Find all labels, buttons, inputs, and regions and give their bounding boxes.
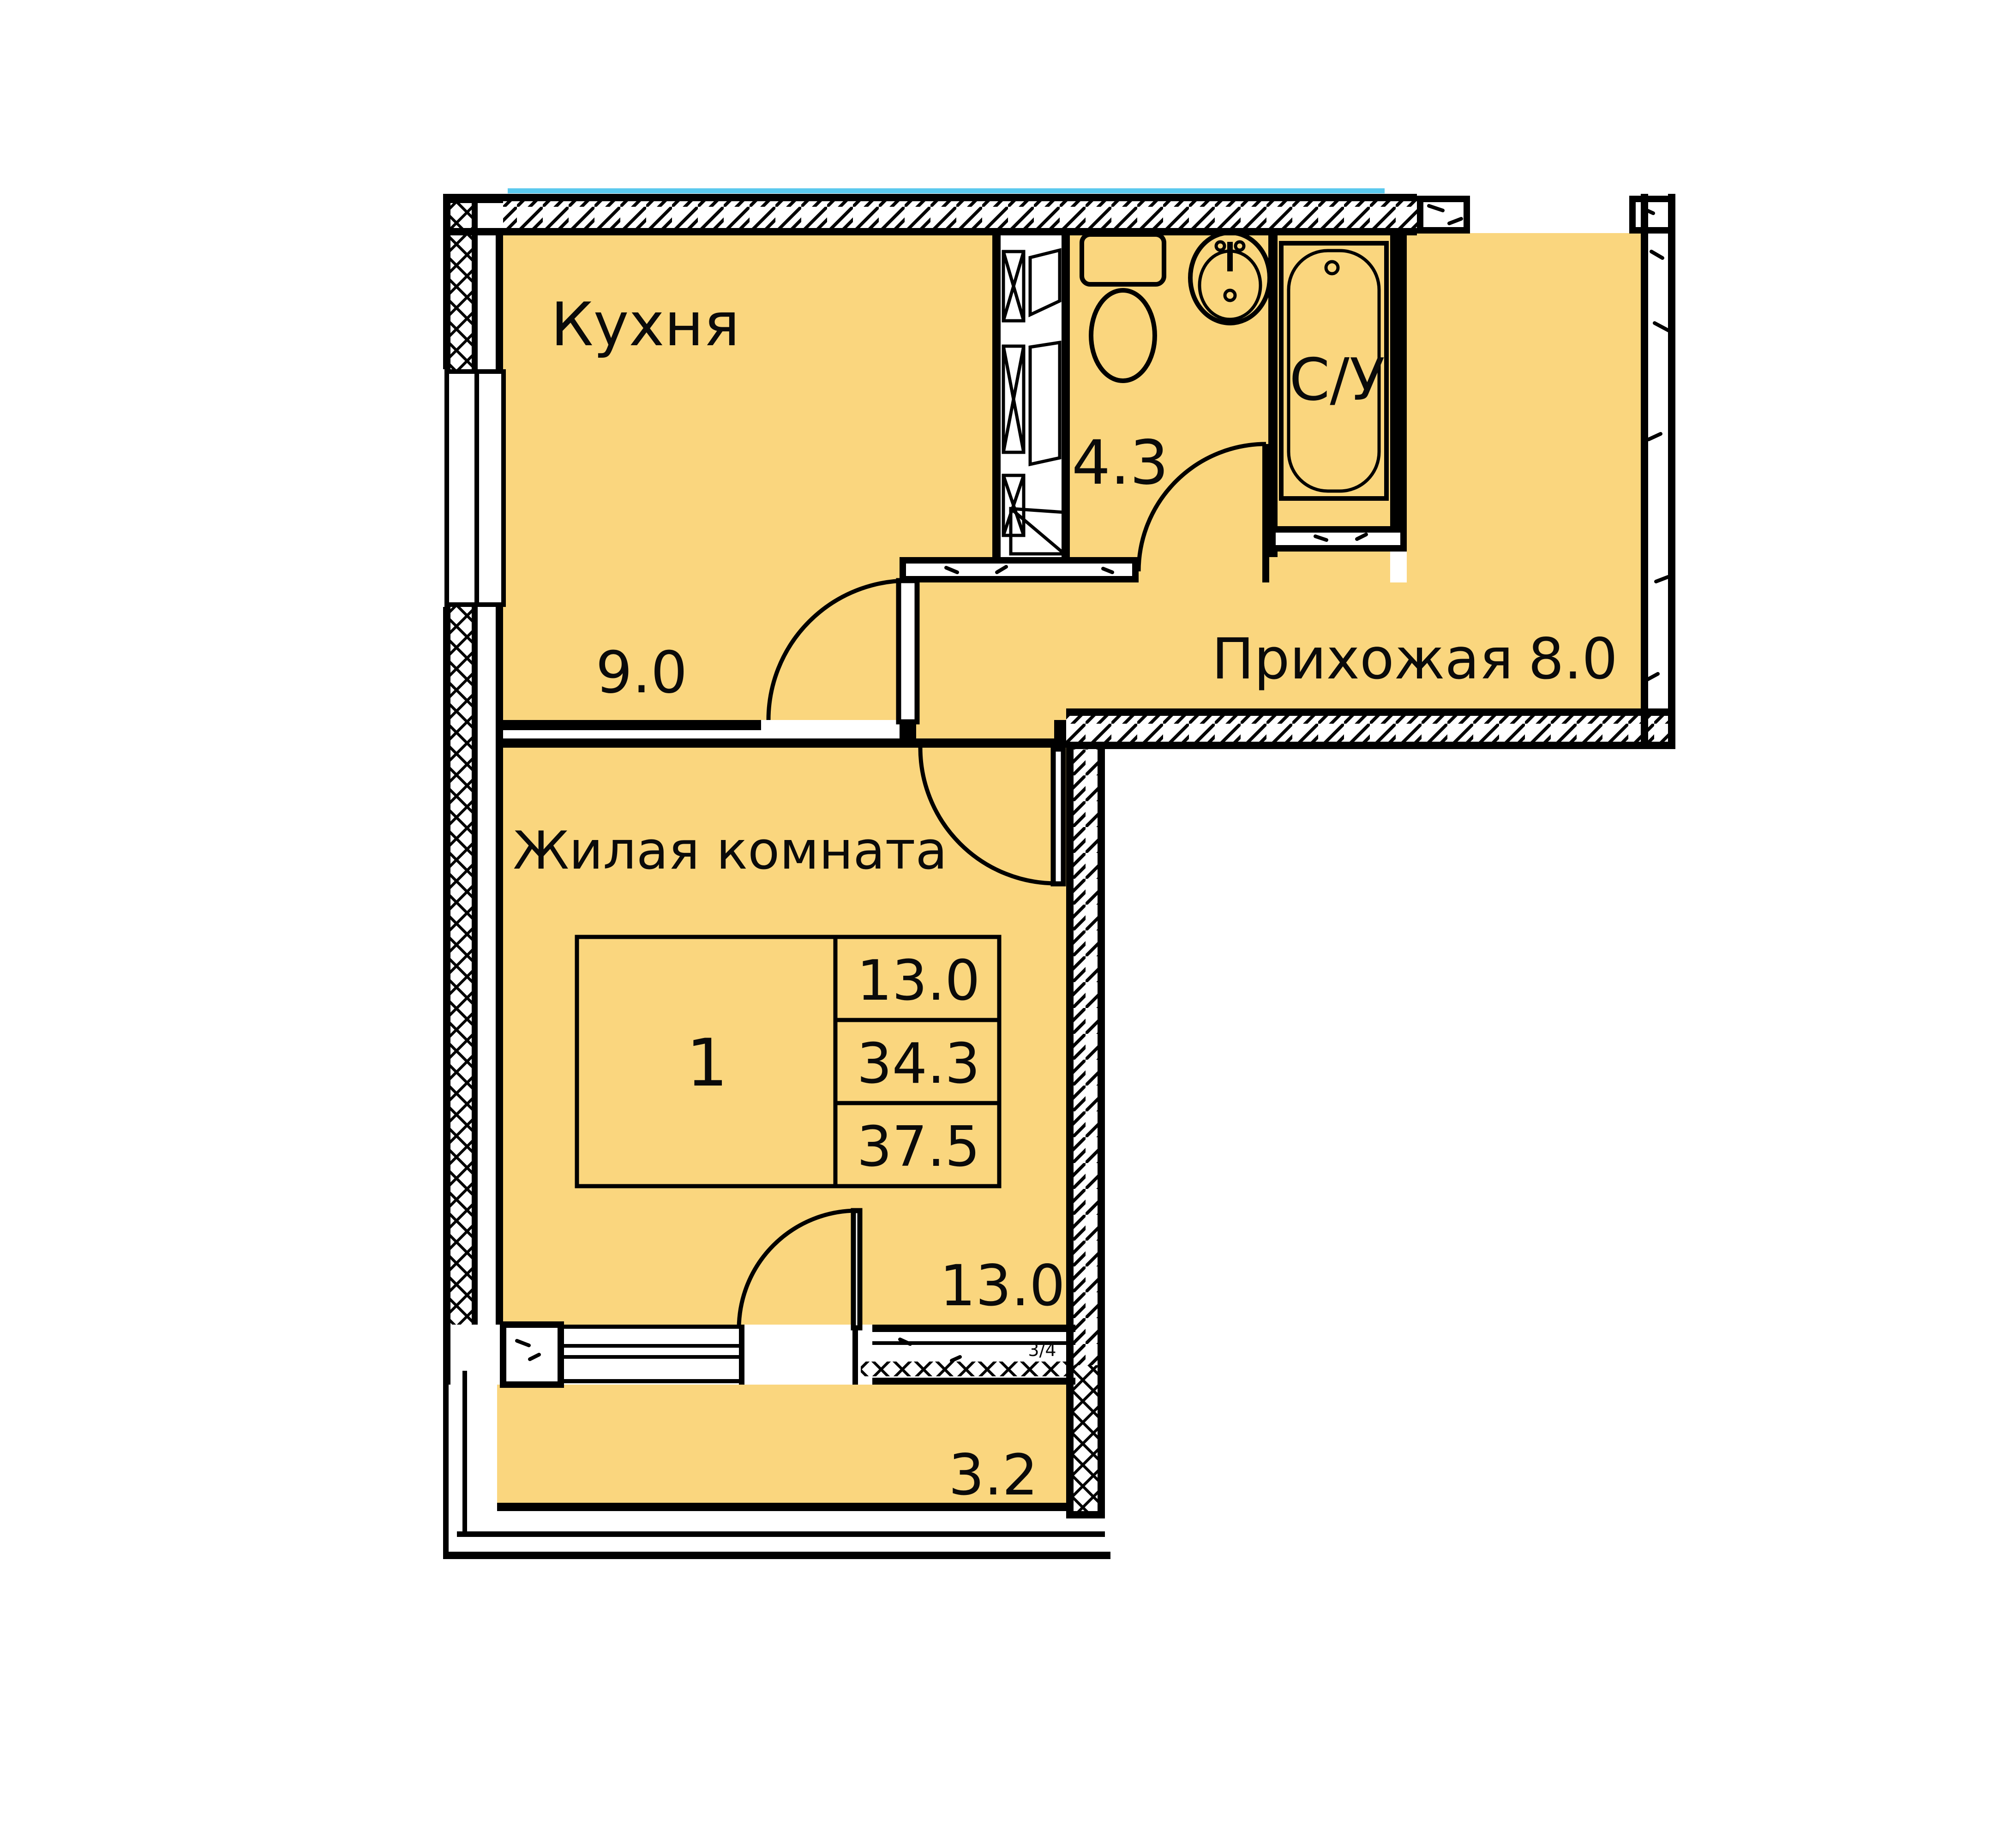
right-wall-outer-line	[1668, 194, 1675, 749]
left-wall-inner-b	[496, 607, 503, 1325]
top-wall-outer-edge	[443, 194, 1417, 201]
hall-bottom-wall-hatch	[1066, 716, 1675, 742]
kitchen-label: Кухня	[551, 289, 739, 360]
hallway-label: Прихожая	[1212, 626, 1513, 692]
living-right-wall-right-edge	[1098, 748, 1105, 1518]
room-hallway-left	[916, 582, 1066, 738]
bath-door-gap	[1139, 557, 1262, 582]
living-label: Жилая комната	[513, 820, 947, 881]
su-right-wall	[1390, 233, 1407, 552]
right-wall-inner-line	[1641, 194, 1648, 749]
balcony-area: 3.2	[948, 1442, 1038, 1508]
kitchen-window	[444, 369, 506, 607]
sink-tap	[1227, 242, 1233, 271]
hallway-area: 8.0	[1528, 626, 1618, 692]
hall-bottom-wall-top-edge	[1066, 708, 1675, 716]
living-door-jamb-block	[1054, 720, 1066, 748]
left-wall-hatch-a	[450, 201, 472, 369]
left-wall-hatch-b	[450, 607, 472, 1325]
left-wall-outer-b	[443, 607, 450, 1385]
bath-bottom-wall-left	[903, 560, 1135, 579]
sill-hatch-strip	[861, 1362, 1075, 1376]
room-bathroom-43	[1070, 233, 1268, 557]
kitchen-vent-wall	[992, 233, 1001, 582]
living-right-wall-cap	[1066, 1511, 1105, 1518]
bath-door-jamb	[1262, 557, 1269, 582]
top-wall-hatch	[503, 201, 1417, 228]
kitchen-living-wall-top-line	[503, 720, 761, 730]
stamp-total-area: 37.5	[857, 1115, 980, 1179]
bathroom-area: 4.3	[1072, 427, 1169, 498]
sill-mark: 3/4	[1028, 1340, 1056, 1360]
left-wall-outer-a	[443, 194, 450, 369]
living-area: 13.0	[940, 1253, 1065, 1319]
left-wall-midline-b	[472, 607, 478, 1325]
balcony-right-wall-hatch	[1074, 1365, 1098, 1518]
floor-plan-page: Кухня 9.0 4.3 С/У Прихожая 8.0 Жилая ком…	[0, 0, 1998, 1848]
room-hallway-under-su	[1269, 552, 1390, 582]
living-bottom-wall	[503, 1325, 1075, 1385]
left-wall-inner-a	[496, 233, 503, 369]
sill-pier	[503, 1325, 561, 1385]
hall-bottom-wall-cap	[1668, 708, 1675, 749]
hall-bottom-wall-bottom-edge	[1066, 742, 1675, 749]
bathroom-label: С/У	[1289, 346, 1385, 414]
balcony-door-jamb	[852, 1325, 858, 1385]
floor-plan-drawing: Кухня 9.0 4.3 С/У Прихожая 8.0 Жилая ком…	[0, 0, 1998, 1848]
stamp-living-area: 13.0	[857, 949, 980, 1013]
living-right-wall-hatch	[1074, 748, 1098, 1365]
su-bottom-wall	[1272, 529, 1404, 548]
top-wall-stub-left	[1420, 199, 1467, 230]
stamp-area-no-balcony: 34.3	[857, 1032, 980, 1096]
living-window	[560, 1325, 744, 1385]
living-right-wall-left-edge	[1066, 748, 1074, 1518]
left-wall-midline-a	[472, 201, 478, 369]
stamp-rooms-count: 1	[686, 1025, 728, 1101]
vent-shaft	[1003, 250, 1064, 554]
glazing-accent-line	[508, 188, 1385, 193]
kitchen-area: 9.0	[596, 639, 688, 706]
kitchen-living-wall-bottom-line	[503, 738, 1066, 748]
